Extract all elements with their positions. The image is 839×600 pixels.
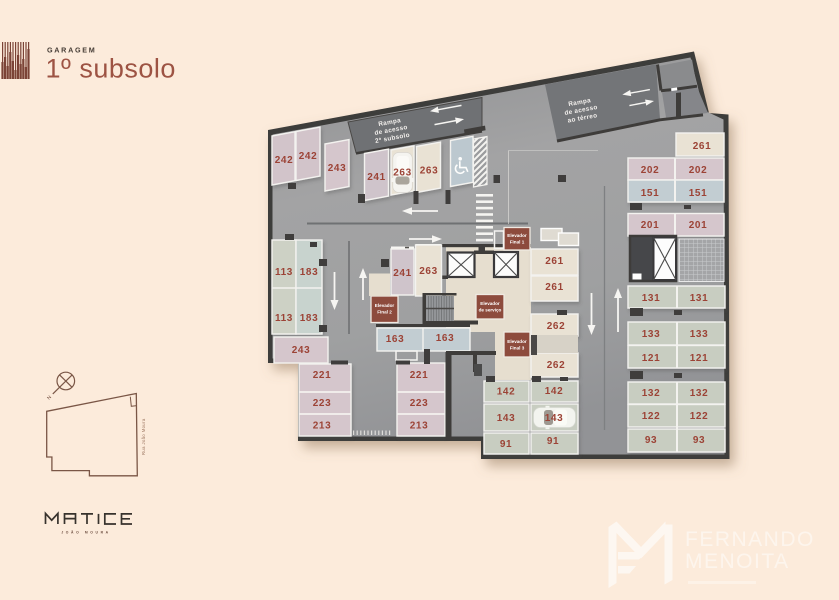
svg-text:262: 262 (547, 321, 566, 332)
svg-text:93: 93 (693, 435, 705, 446)
svg-text:221: 221 (410, 370, 429, 381)
svg-text:151: 151 (641, 188, 660, 199)
svg-text:91: 91 (500, 439, 512, 450)
svg-text:Elevador: Elevador (507, 339, 527, 344)
svg-text:Rua João Moura: Rua João Moura (141, 418, 146, 455)
svg-text:223: 223 (410, 398, 429, 409)
svg-text:121: 121 (642, 353, 661, 364)
svg-text:Elevador: Elevador (375, 303, 395, 308)
svg-text:201: 201 (689, 220, 708, 231)
svg-text:202: 202 (641, 165, 660, 176)
svg-text:FERNANDO: FERNANDO (685, 528, 815, 551)
svg-text:93: 93 (645, 435, 657, 446)
svg-text:133: 133 (642, 329, 661, 340)
svg-text:263: 263 (393, 168, 412, 179)
svg-text:121: 121 (690, 353, 709, 364)
svg-text:143: 143 (545, 413, 564, 424)
svg-text:213: 213 (410, 421, 429, 432)
svg-text:263: 263 (419, 266, 438, 277)
svg-text:163: 163 (386, 334, 405, 345)
svg-text:261: 261 (693, 141, 712, 152)
svg-text:Final 1: Final 1 (510, 240, 525, 245)
svg-text:201: 201 (641, 220, 660, 231)
svg-text:261: 261 (545, 282, 564, 293)
svg-text:223: 223 (313, 398, 332, 409)
svg-text:132: 132 (642, 388, 661, 399)
svg-text:263: 263 (420, 166, 439, 177)
svg-text:242: 242 (275, 155, 294, 166)
svg-text:242: 242 (299, 151, 318, 162)
svg-text:142: 142 (545, 386, 564, 397)
svg-text:1º subsolo: 1º subsolo (46, 54, 176, 84)
svg-text:143: 143 (497, 413, 516, 424)
svg-text:91: 91 (547, 436, 559, 447)
svg-text:243: 243 (328, 163, 347, 174)
svg-text:221: 221 (313, 370, 332, 381)
svg-text:241: 241 (367, 172, 386, 183)
svg-text:131: 131 (642, 293, 661, 304)
svg-text:122: 122 (690, 411, 709, 422)
svg-text:243: 243 (292, 345, 311, 356)
svg-text:163: 163 (436, 333, 455, 344)
svg-text:261: 261 (545, 256, 564, 267)
svg-text:113: 113 (275, 267, 293, 278)
svg-text:202: 202 (689, 165, 708, 176)
svg-text:113: 113 (275, 313, 293, 324)
svg-text:Elevador: Elevador (507, 233, 527, 238)
svg-text:JOÃO MOURA: JOÃO MOURA (61, 530, 110, 535)
svg-text:262: 262 (547, 360, 566, 371)
svg-text:151: 151 (689, 188, 708, 199)
svg-text:122: 122 (642, 411, 661, 422)
svg-text:Final 3: Final 3 (510, 346, 525, 351)
svg-text:241: 241 (393, 268, 412, 279)
svg-text:183: 183 (300, 313, 319, 324)
svg-text:Elevador: Elevador (480, 301, 500, 306)
svg-text:de serviço: de serviço (479, 308, 502, 313)
svg-text:MENOITA: MENOITA (685, 550, 790, 573)
svg-text:132: 132 (690, 388, 709, 399)
svg-text:142: 142 (497, 387, 516, 398)
svg-text:133: 133 (690, 329, 709, 340)
svg-text:Final 2: Final 2 (377, 310, 392, 315)
svg-text:131: 131 (690, 293, 709, 304)
svg-text:183: 183 (300, 267, 319, 278)
svg-text:213: 213 (313, 421, 332, 432)
